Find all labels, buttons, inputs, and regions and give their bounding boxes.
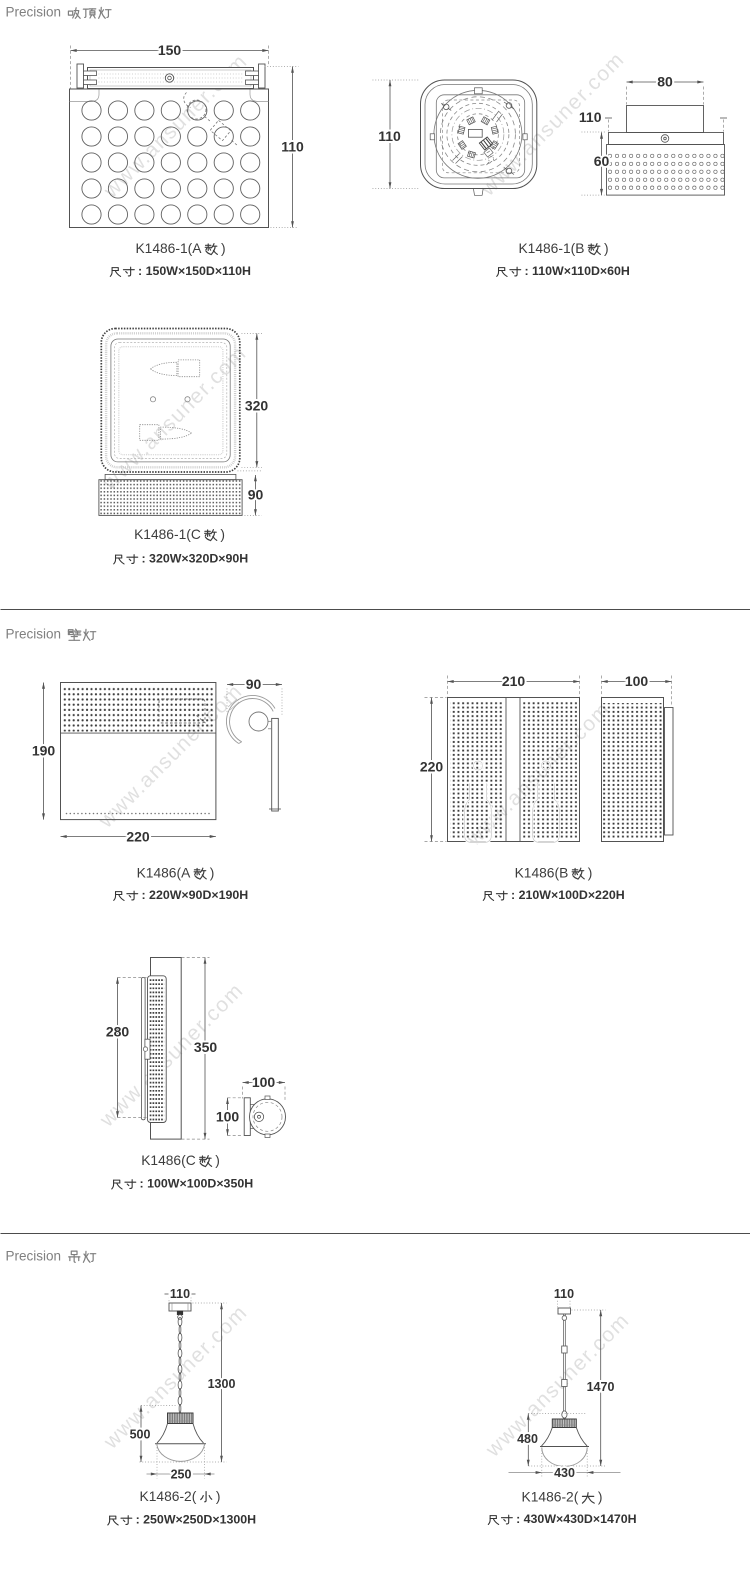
svg-text:220: 220 [420, 759, 444, 775]
svg-text:100: 100 [625, 673, 649, 689]
svg-text:: 320W×320D×90H: : 320W×320D×90H [141, 552, 248, 566]
svg-text:): ) [604, 241, 609, 256]
svg-text:K1486(A: K1486(A [137, 866, 191, 881]
svg-text:1300: 1300 [208, 1377, 236, 1391]
svg-text:: 430W×430D×1470H: : 430W×430D×1470H [516, 1512, 637, 1526]
svg-text:90: 90 [246, 676, 262, 692]
svg-text:500: 500 [130, 1428, 151, 1442]
svg-text:190: 190 [32, 743, 56, 759]
svg-text:): ) [210, 866, 215, 881]
svg-text:: 210W×100D×220H: : 210W×100D×220H [511, 888, 625, 902]
svg-text:): ) [215, 1153, 220, 1168]
svg-text:K1486(C: K1486(C [141, 1153, 195, 1168]
svg-text:110: 110 [554, 1287, 574, 1301]
svg-text:320: 320 [245, 398, 269, 414]
svg-text:110: 110 [170, 1287, 190, 1301]
svg-text:): ) [220, 527, 225, 542]
svg-text:: 100W×100D×350H: : 100W×100D×350H [140, 1177, 254, 1191]
svg-text:K1486-2(: K1486-2( [522, 1490, 579, 1505]
svg-text:250: 250 [171, 1468, 192, 1482]
svg-text:90: 90 [248, 487, 264, 503]
svg-text:350: 350 [194, 1039, 218, 1055]
svg-text:): ) [221, 241, 226, 256]
svg-text:100: 100 [252, 1074, 276, 1090]
svg-text:K1486-1(A: K1486-1(A [135, 241, 202, 256]
svg-text:280: 280 [106, 1024, 130, 1040]
svg-text:110: 110 [281, 139, 304, 155]
svg-text:: 250W×250D×1300H: : 250W×250D×1300H [136, 1513, 257, 1527]
svg-text:K1486-1(C: K1486-1(C [134, 527, 201, 542]
svg-text:80: 80 [657, 74, 673, 90]
svg-text:: 150W×150D×110H: : 150W×150D×110H [138, 264, 251, 278]
svg-text:): ) [588, 866, 593, 881]
svg-text:K1486-2(: K1486-2( [140, 1489, 197, 1504]
svg-text:): ) [216, 1489, 221, 1504]
svg-text:: 110W×110D×60H: : 110W×110D×60H [524, 264, 629, 278]
svg-text:Precision: Precision [6, 1249, 62, 1264]
svg-text:Precision: Precision [6, 5, 62, 20]
svg-text:480: 480 [517, 1432, 538, 1446]
svg-text:110: 110 [579, 109, 602, 125]
svg-text:430: 430 [554, 1466, 575, 1480]
svg-text:K1486-1(B: K1486-1(B [518, 241, 584, 256]
svg-text:Precision: Precision [6, 627, 62, 642]
svg-text:100: 100 [216, 1109, 240, 1125]
svg-text:220: 220 [126, 829, 150, 845]
svg-text:60: 60 [594, 153, 610, 169]
svg-text:: 220W×90D×190H: : 220W×90D×190H [141, 888, 248, 902]
svg-text:210: 210 [502, 673, 526, 689]
svg-text:): ) [598, 1490, 603, 1505]
svg-text:1470: 1470 [587, 1380, 615, 1394]
svg-text:K1486(B: K1486(B [515, 866, 569, 881]
svg-text:150: 150 [158, 42, 182, 58]
svg-text:110: 110 [378, 128, 401, 144]
